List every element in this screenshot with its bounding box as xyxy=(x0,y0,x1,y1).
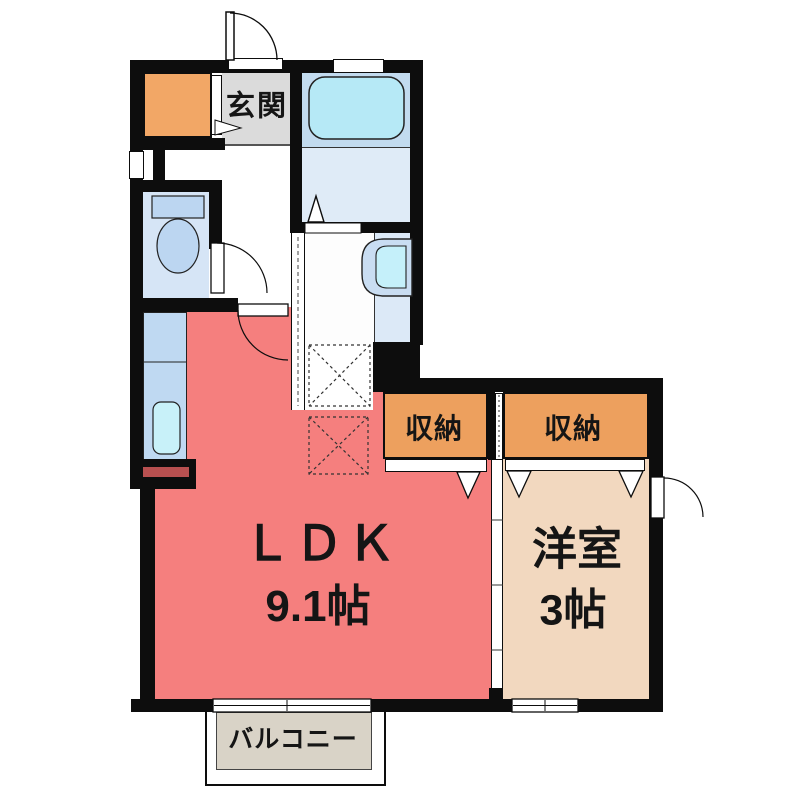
entrance-door xyxy=(226,12,277,60)
kitchen-wall-slot xyxy=(143,467,189,477)
closet-right-label: 収納 xyxy=(544,415,602,443)
wall-segment xyxy=(420,378,663,392)
wall-segment xyxy=(209,192,222,249)
sliding-door-track xyxy=(495,393,503,460)
kitchen-counter xyxy=(143,312,187,461)
genkan-label: 玄関 xyxy=(226,93,288,122)
wall-segment xyxy=(373,342,420,392)
closet-left-label: 収納 xyxy=(405,415,463,443)
wall-segment xyxy=(131,699,663,712)
wall-segment xyxy=(143,138,225,150)
toilet-door xyxy=(211,243,267,293)
window xyxy=(129,151,144,179)
closet-left-door xyxy=(385,459,487,472)
vanity-counter xyxy=(374,233,410,342)
wall-segment xyxy=(130,298,238,312)
western-room-floor xyxy=(503,459,650,700)
balcony-label: バルコニー xyxy=(228,728,358,753)
closet-right-door xyxy=(505,459,645,471)
western-room-label: 洋室 xyxy=(532,527,622,572)
wall-segment xyxy=(649,378,663,712)
shoe-cabinet xyxy=(143,72,212,138)
wall-segment xyxy=(153,150,165,180)
wall-segment xyxy=(489,688,503,700)
sliding-door-partition xyxy=(491,460,503,688)
window xyxy=(228,58,283,70)
wall-segment xyxy=(130,178,143,462)
shoe-cabinet-door xyxy=(211,75,222,135)
washroom-floor-lower xyxy=(305,342,373,410)
ldk-floor xyxy=(187,307,291,700)
ldk-size-label: 9.1帖 xyxy=(265,585,370,629)
bathroom-floor xyxy=(302,147,410,222)
toilet-floor xyxy=(143,192,209,298)
western-room-size-label: 3帖 xyxy=(540,590,607,633)
wall-segment xyxy=(488,392,495,460)
wall-segment xyxy=(290,70,302,223)
wall-segment xyxy=(130,180,222,192)
window xyxy=(333,59,384,73)
bathroom-upper-floor xyxy=(302,70,410,147)
floor-plan: 玄関 ＬＤＫ 9.1帖 洋室 3帖 収納 収納 バルコニー xyxy=(0,0,800,800)
wall-segment xyxy=(130,60,143,152)
wall-segment xyxy=(290,222,423,233)
wall-segment xyxy=(140,485,155,712)
ldk-floor xyxy=(155,489,187,700)
wall-segment xyxy=(410,60,423,345)
ldk-label: ＬＤＫ xyxy=(243,521,399,569)
washroom-sliding-door xyxy=(291,233,305,410)
